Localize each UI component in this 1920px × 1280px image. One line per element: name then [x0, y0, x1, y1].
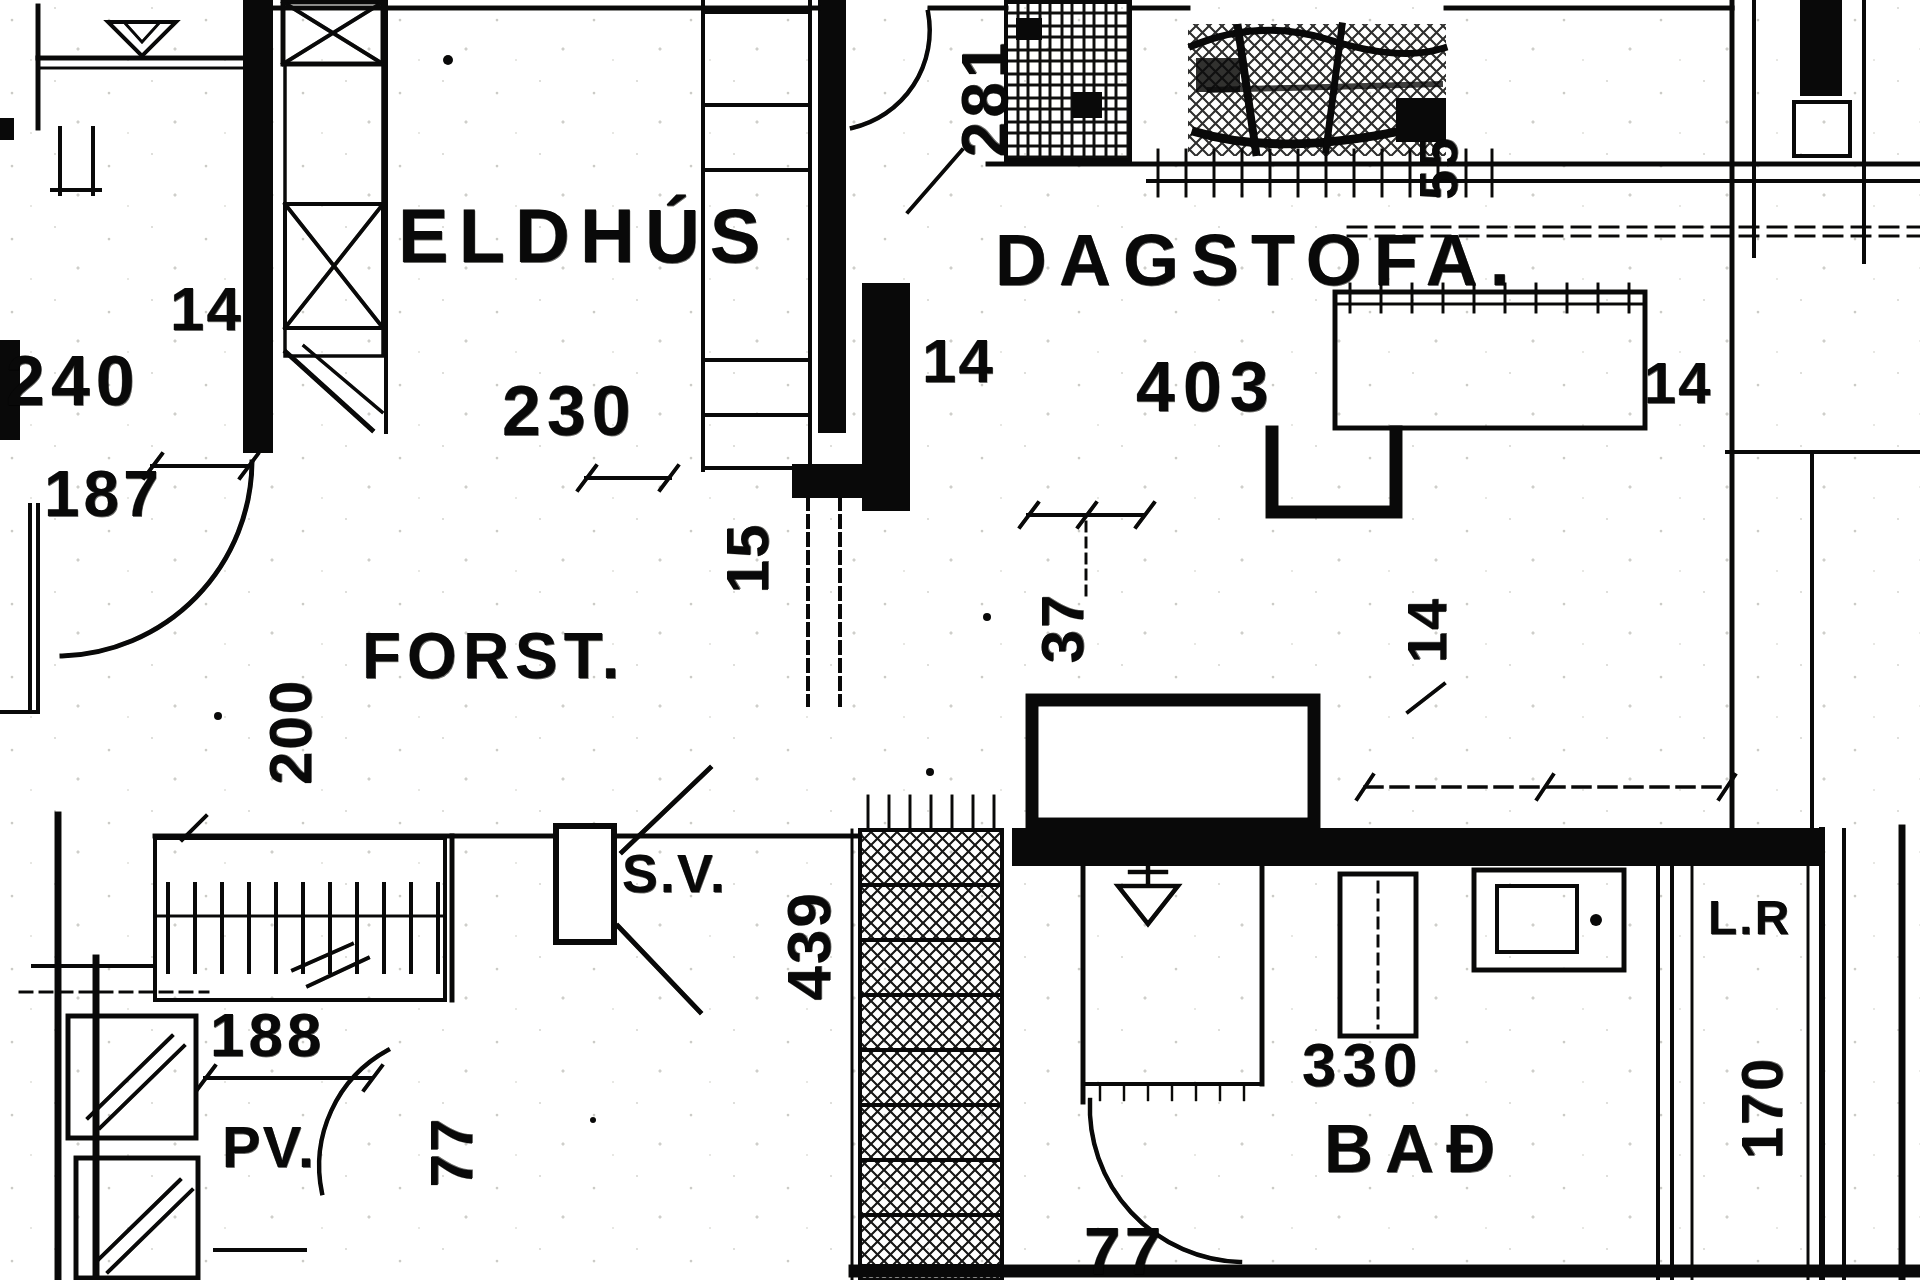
label-dim-14-dagstofa: 14: [1644, 354, 1713, 412]
label-dim-330: 330: [1302, 1034, 1423, 1096]
label-room-forst: FORST.: [362, 624, 626, 688]
label-room-lr: L.R: [1708, 894, 1791, 942]
radiator: [1340, 874, 1416, 1036]
floor-plan-drawing: [0, 0, 1920, 1280]
label-dim-200: 200: [261, 679, 321, 785]
label-dim-439: 439: [778, 891, 840, 1000]
label-room-dagstofa: DAGSTOFA.: [995, 224, 1522, 296]
stairs-hatched: [852, 796, 1002, 1280]
label-dim-15: 15: [718, 523, 778, 594]
label-room-bad: BAÐ: [1324, 1114, 1507, 1182]
label-dim-230: 230: [502, 376, 637, 446]
label-dim-170: 170: [1733, 1057, 1791, 1160]
window-hatch-box: [1006, 2, 1130, 160]
label-dim-77-pv-door: 77: [422, 1117, 482, 1188]
label-dim-14-kitchen-door: 14: [170, 278, 243, 340]
wall-entry-kitchen: [243, 0, 273, 453]
label-room-sv: S.V.: [622, 846, 727, 900]
label-dim-55: 55: [1411, 136, 1465, 200]
label-dim-37: 37: [1033, 593, 1093, 664]
label-dim-14-passage: 14: [922, 330, 995, 392]
label-dim-188: 188: [210, 1004, 325, 1066]
label-room-eldhus: ELDHÚS: [398, 198, 770, 274]
label-room-pv: PV.: [222, 1118, 316, 1176]
wall-main-horizontal: [1012, 828, 1822, 866]
label-dim-14-right: 14: [1399, 597, 1455, 663]
label-dim-403: 403: [1136, 352, 1277, 422]
floor-plan-scan: ELDHÚSDAGSTOFA.FORST.S.V.BAÐPV.L.R240187…: [0, 0, 1920, 1280]
label-dim-187: 187: [44, 462, 163, 526]
label-dim-77-bath-door: 77: [1084, 1218, 1165, 1280]
label-dim-281: 281: [953, 39, 1017, 158]
label-dim-240: 240: [6, 346, 141, 416]
fireplace-block: [1032, 700, 1314, 824]
